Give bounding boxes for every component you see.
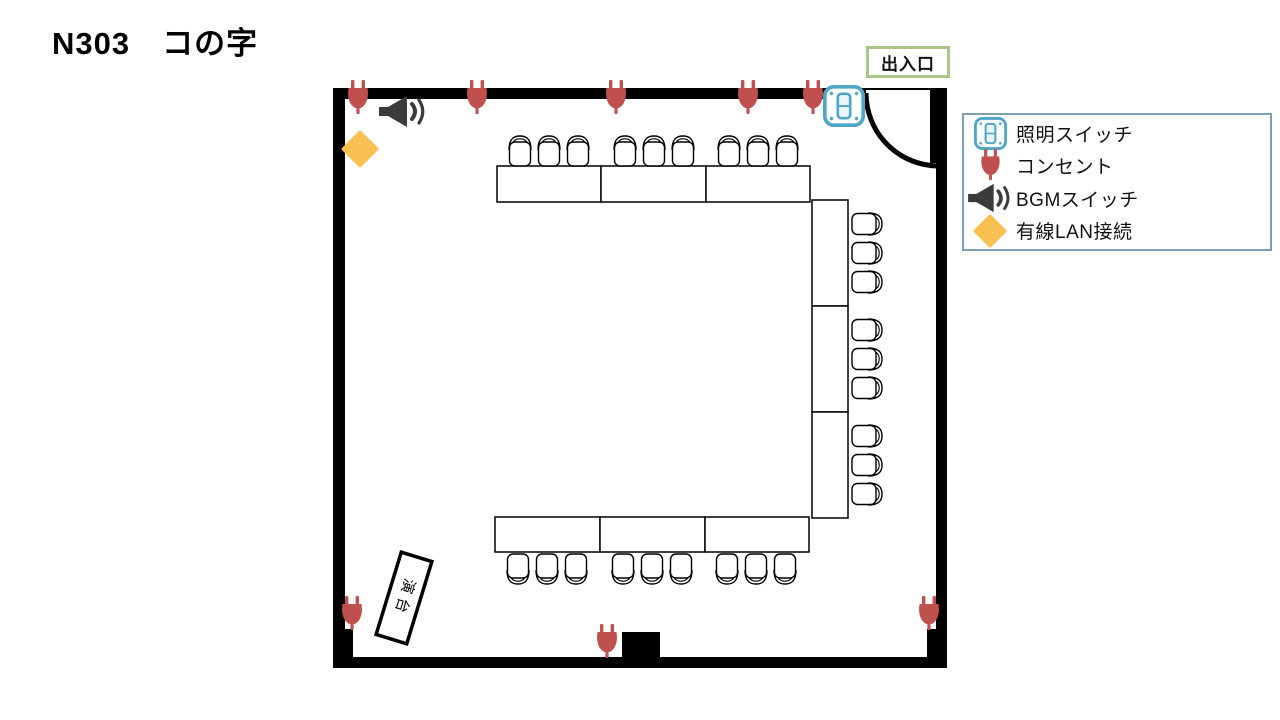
legend-item-light-switch: 照明スイッチ: [964, 117, 1270, 149]
table: [495, 517, 600, 552]
bgm-switch-icon: [379, 96, 423, 127]
entrance-label: 出入口: [866, 46, 950, 78]
chair: [852, 454, 882, 476]
outlet-icon: [964, 149, 1016, 182]
legend-label: 照明スイッチ: [1016, 120, 1133, 147]
outlet-icon: [348, 80, 368, 114]
chair: [776, 136, 798, 166]
wired-lan-icon: [341, 130, 379, 168]
outlet-icon: [467, 80, 487, 114]
legend-item-outlet: コンセント: [964, 150, 1270, 182]
pillar-bottom-left: [333, 629, 353, 668]
legend-label: BGMスイッチ: [1016, 185, 1139, 212]
chair: [745, 554, 767, 584]
table: [812, 412, 848, 518]
chair: [670, 554, 692, 584]
chair: [643, 136, 665, 166]
chair: [509, 136, 531, 166]
table: [812, 200, 848, 306]
chair: [536, 554, 558, 584]
wired-lan-icon: [964, 213, 1016, 249]
chair: [747, 136, 769, 166]
wall-right: [936, 88, 947, 668]
floor-plan: 演台: [0, 0, 1280, 720]
bgm-switch-icon: [964, 183, 1016, 214]
outlet-icon: [606, 80, 626, 114]
light-switch-icon: [964, 117, 1016, 150]
podium: 演台: [376, 552, 432, 644]
chair: [852, 213, 882, 235]
chair: [852, 271, 882, 293]
table: [706, 166, 810, 202]
chair: [852, 348, 882, 370]
chair: [612, 554, 634, 584]
chair: [852, 319, 882, 341]
chair: [716, 554, 738, 584]
legend-label: コンセント: [1016, 152, 1114, 179]
chair: [538, 136, 560, 166]
light-switch-icon: [825, 87, 863, 125]
door-leaf: [930, 88, 947, 163]
pillar-bottom-right: [927, 629, 947, 668]
chair: [565, 554, 587, 584]
door-swing-arc: [866, 93, 939, 166]
chair: [567, 136, 589, 166]
chair: [672, 136, 694, 166]
wall-left: [333, 88, 345, 668]
door-threshold-line: [866, 88, 932, 90]
table: [705, 517, 809, 552]
chair: [507, 554, 529, 584]
chair: [852, 425, 882, 447]
page-title: N303 コの字: [52, 18, 258, 63]
chair: [718, 136, 740, 166]
outlet-icon: [803, 80, 823, 114]
chair: [614, 136, 636, 166]
outlet-icon: [597, 624, 617, 658]
chair: [852, 242, 882, 264]
chair: [852, 483, 882, 505]
legend: 照明スイッチ コンセント BGMスイッチ 有線LAN接続: [962, 113, 1272, 251]
legend-item-wired-lan: 有線LAN接続: [964, 215, 1270, 247]
table: [600, 517, 705, 552]
legend-label: 有線LAN接続: [1016, 217, 1132, 244]
chair: [774, 554, 796, 584]
pillar-bottom-middle: [622, 632, 660, 668]
table: [497, 166, 601, 202]
chair: [852, 377, 882, 399]
chair: [641, 554, 663, 584]
outlet-icon: [738, 80, 758, 114]
table: [601, 166, 706, 202]
table: [812, 306, 848, 412]
furniture-layer: [342, 80, 939, 658]
wall-top: [333, 88, 866, 99]
legend-item-bgm-switch: BGMスイッチ: [964, 182, 1270, 214]
floor-plan-page: 演台 N303 コの字 出入口 照明スイッチ コンセント BGMスイッチ: [0, 0, 1280, 720]
